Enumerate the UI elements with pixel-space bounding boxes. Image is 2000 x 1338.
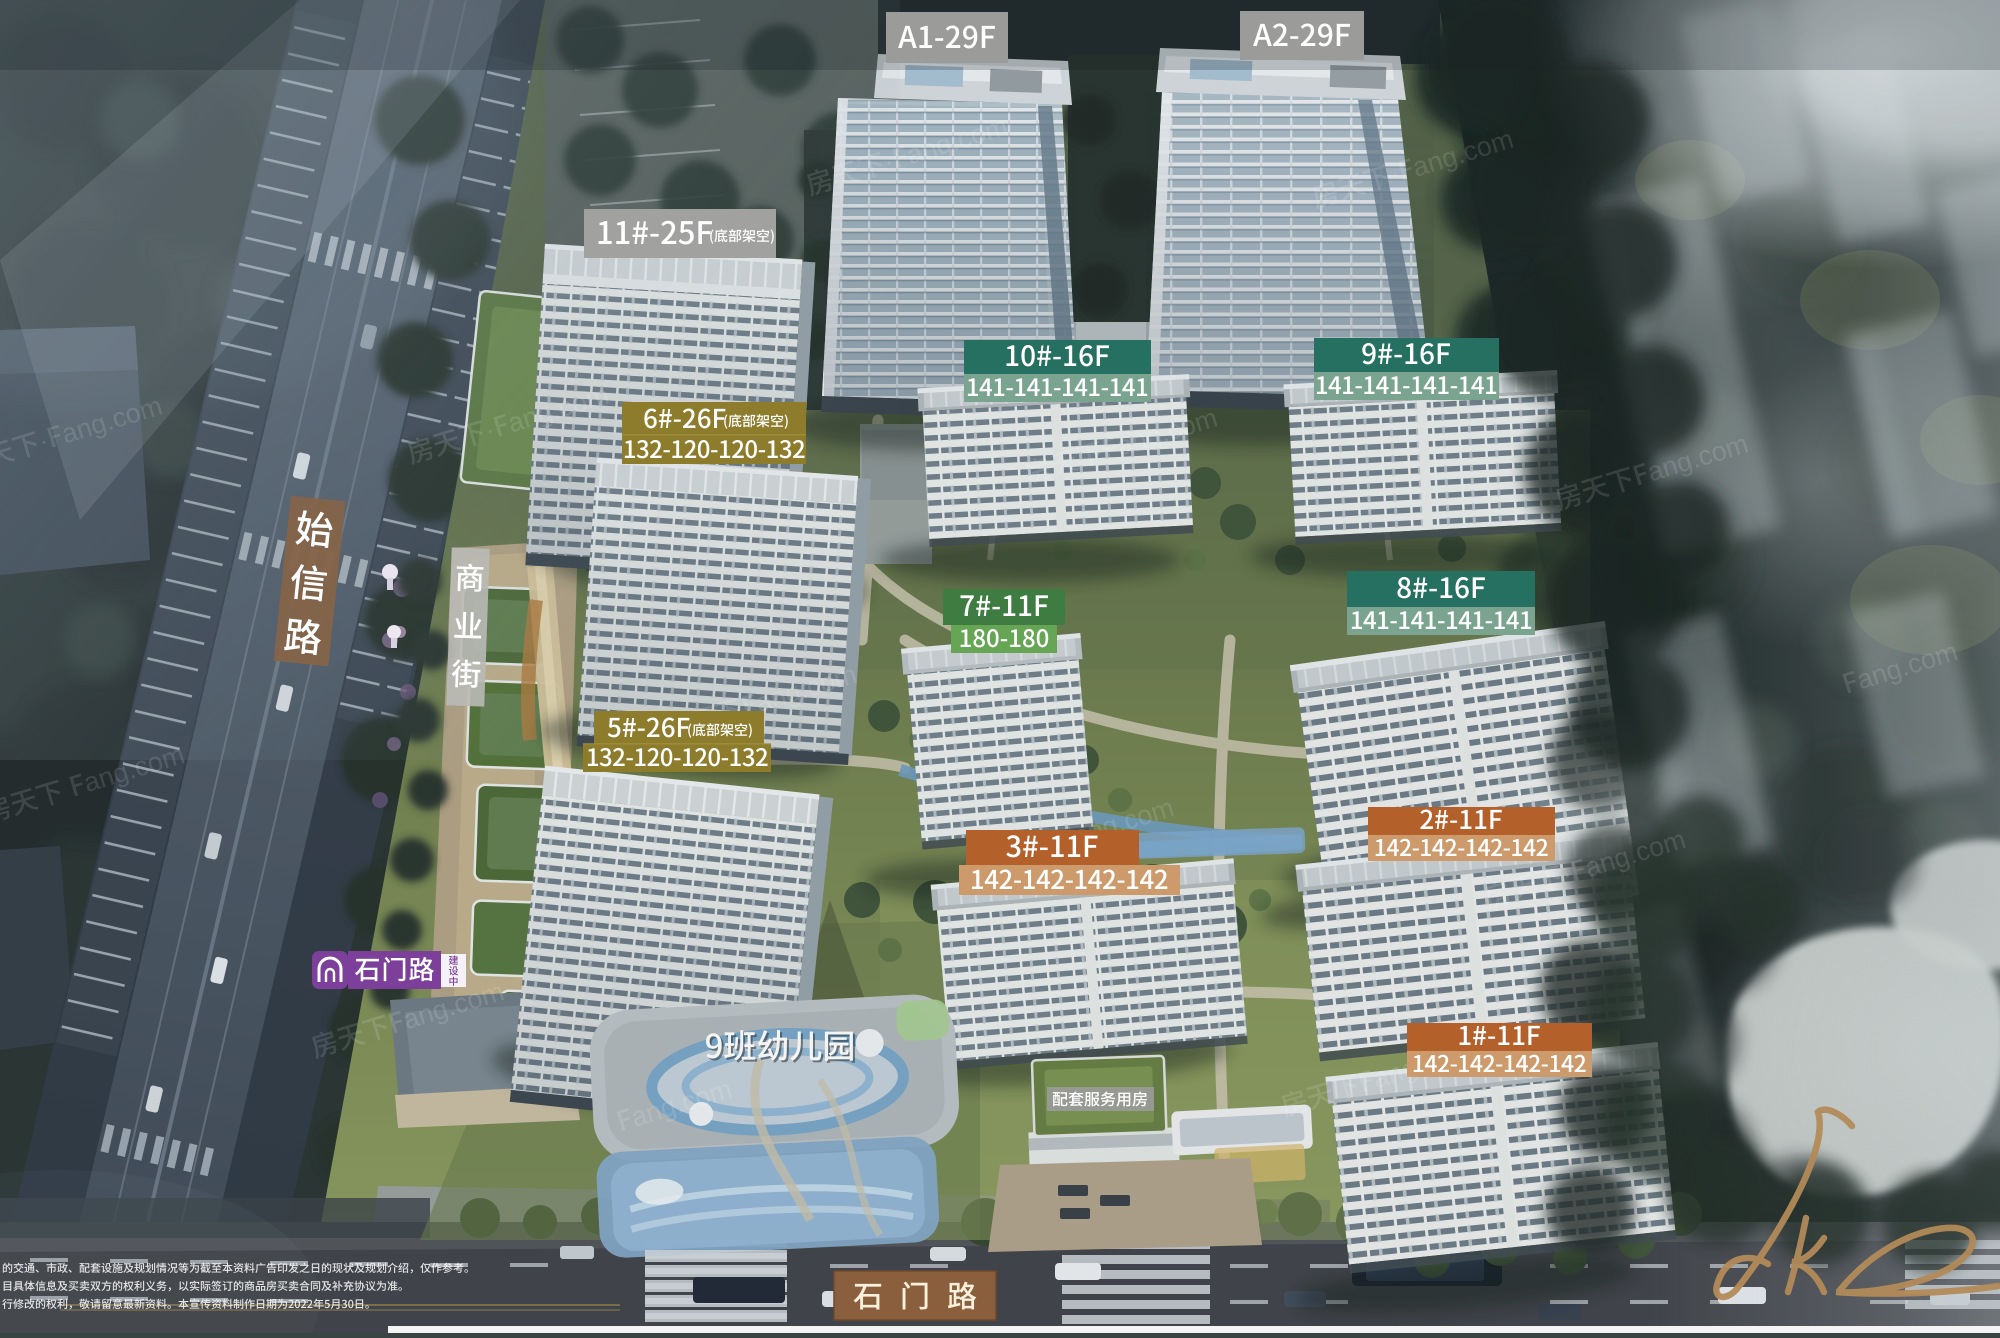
svg-text:141-141-141-141: 141-141-141-141 [1350,601,1532,636]
svg-text:(底部架空): (底部架空) [709,226,775,246]
svg-text:街: 街 [451,649,483,694]
svg-text:142-142-142-142: 142-142-142-142 [970,860,1168,897]
svg-text:142-142-142-142: 142-142-142-142 [1374,829,1548,863]
svg-text:132-120-120-132: 132-120-120-132 [586,738,768,773]
svg-text:9班幼儿园: 9班幼儿园 [705,1020,856,1068]
svg-text:142-142-142-142: 142-142-142-142 [1412,1045,1586,1079]
svg-text:141-141-141-141: 141-141-141-141 [966,368,1148,403]
svg-text:信: 信 [287,551,331,610]
svg-text:的交通、市政、配套设施及规划情况等为截至本资料广告印发之日的: 的交通、市政、配套设施及规划情况等为截至本资料广告印发之日的现状及规划介绍，仅作… [2,1260,475,1276]
svg-text:配套服务用房: 配套服务用房 [1052,1086,1148,1110]
svg-text:石: 石 [853,1272,883,1316]
svg-text:路: 路 [282,605,326,664]
svg-text:(底部架空): (底部架空) [687,720,753,740]
svg-text:目具体信息及买卖双方的权利义务，以实际签订的商品房买卖合同及: 目具体信息及买卖双方的权利义务，以实际签订的商品房买卖合同及补充协议为准。 [2,1278,409,1294]
svg-text:11#-25F: 11#-25F [596,208,713,253]
svg-text:(底部架空): (底部架空) [723,411,789,431]
svg-text:中: 中 [449,973,459,988]
svg-text:石门路: 石门路 [354,950,435,987]
svg-text:A2-29F: A2-29F [1253,11,1351,55]
svg-text:商: 商 [454,554,486,599]
svg-text:始: 始 [293,497,337,556]
svg-text:路: 路 [947,1272,977,1316]
svg-text:132-120-120-132: 132-120-120-132 [623,430,805,465]
svg-text:141-141-141-141: 141-141-141-141 [1315,366,1497,401]
svg-text:门: 门 [900,1272,930,1316]
svg-text:业: 业 [452,601,484,646]
svg-text:A1-29F: A1-29F [898,13,996,57]
svg-text:行修改的权利，敬请留意最新资料。本宣传资料制作日期为2022: 行修改的权利，敬请留意最新资料。本宣传资料制作日期为2022年5月30日。 [2,1296,376,1312]
svg-text:180-180: 180-180 [959,619,1050,654]
